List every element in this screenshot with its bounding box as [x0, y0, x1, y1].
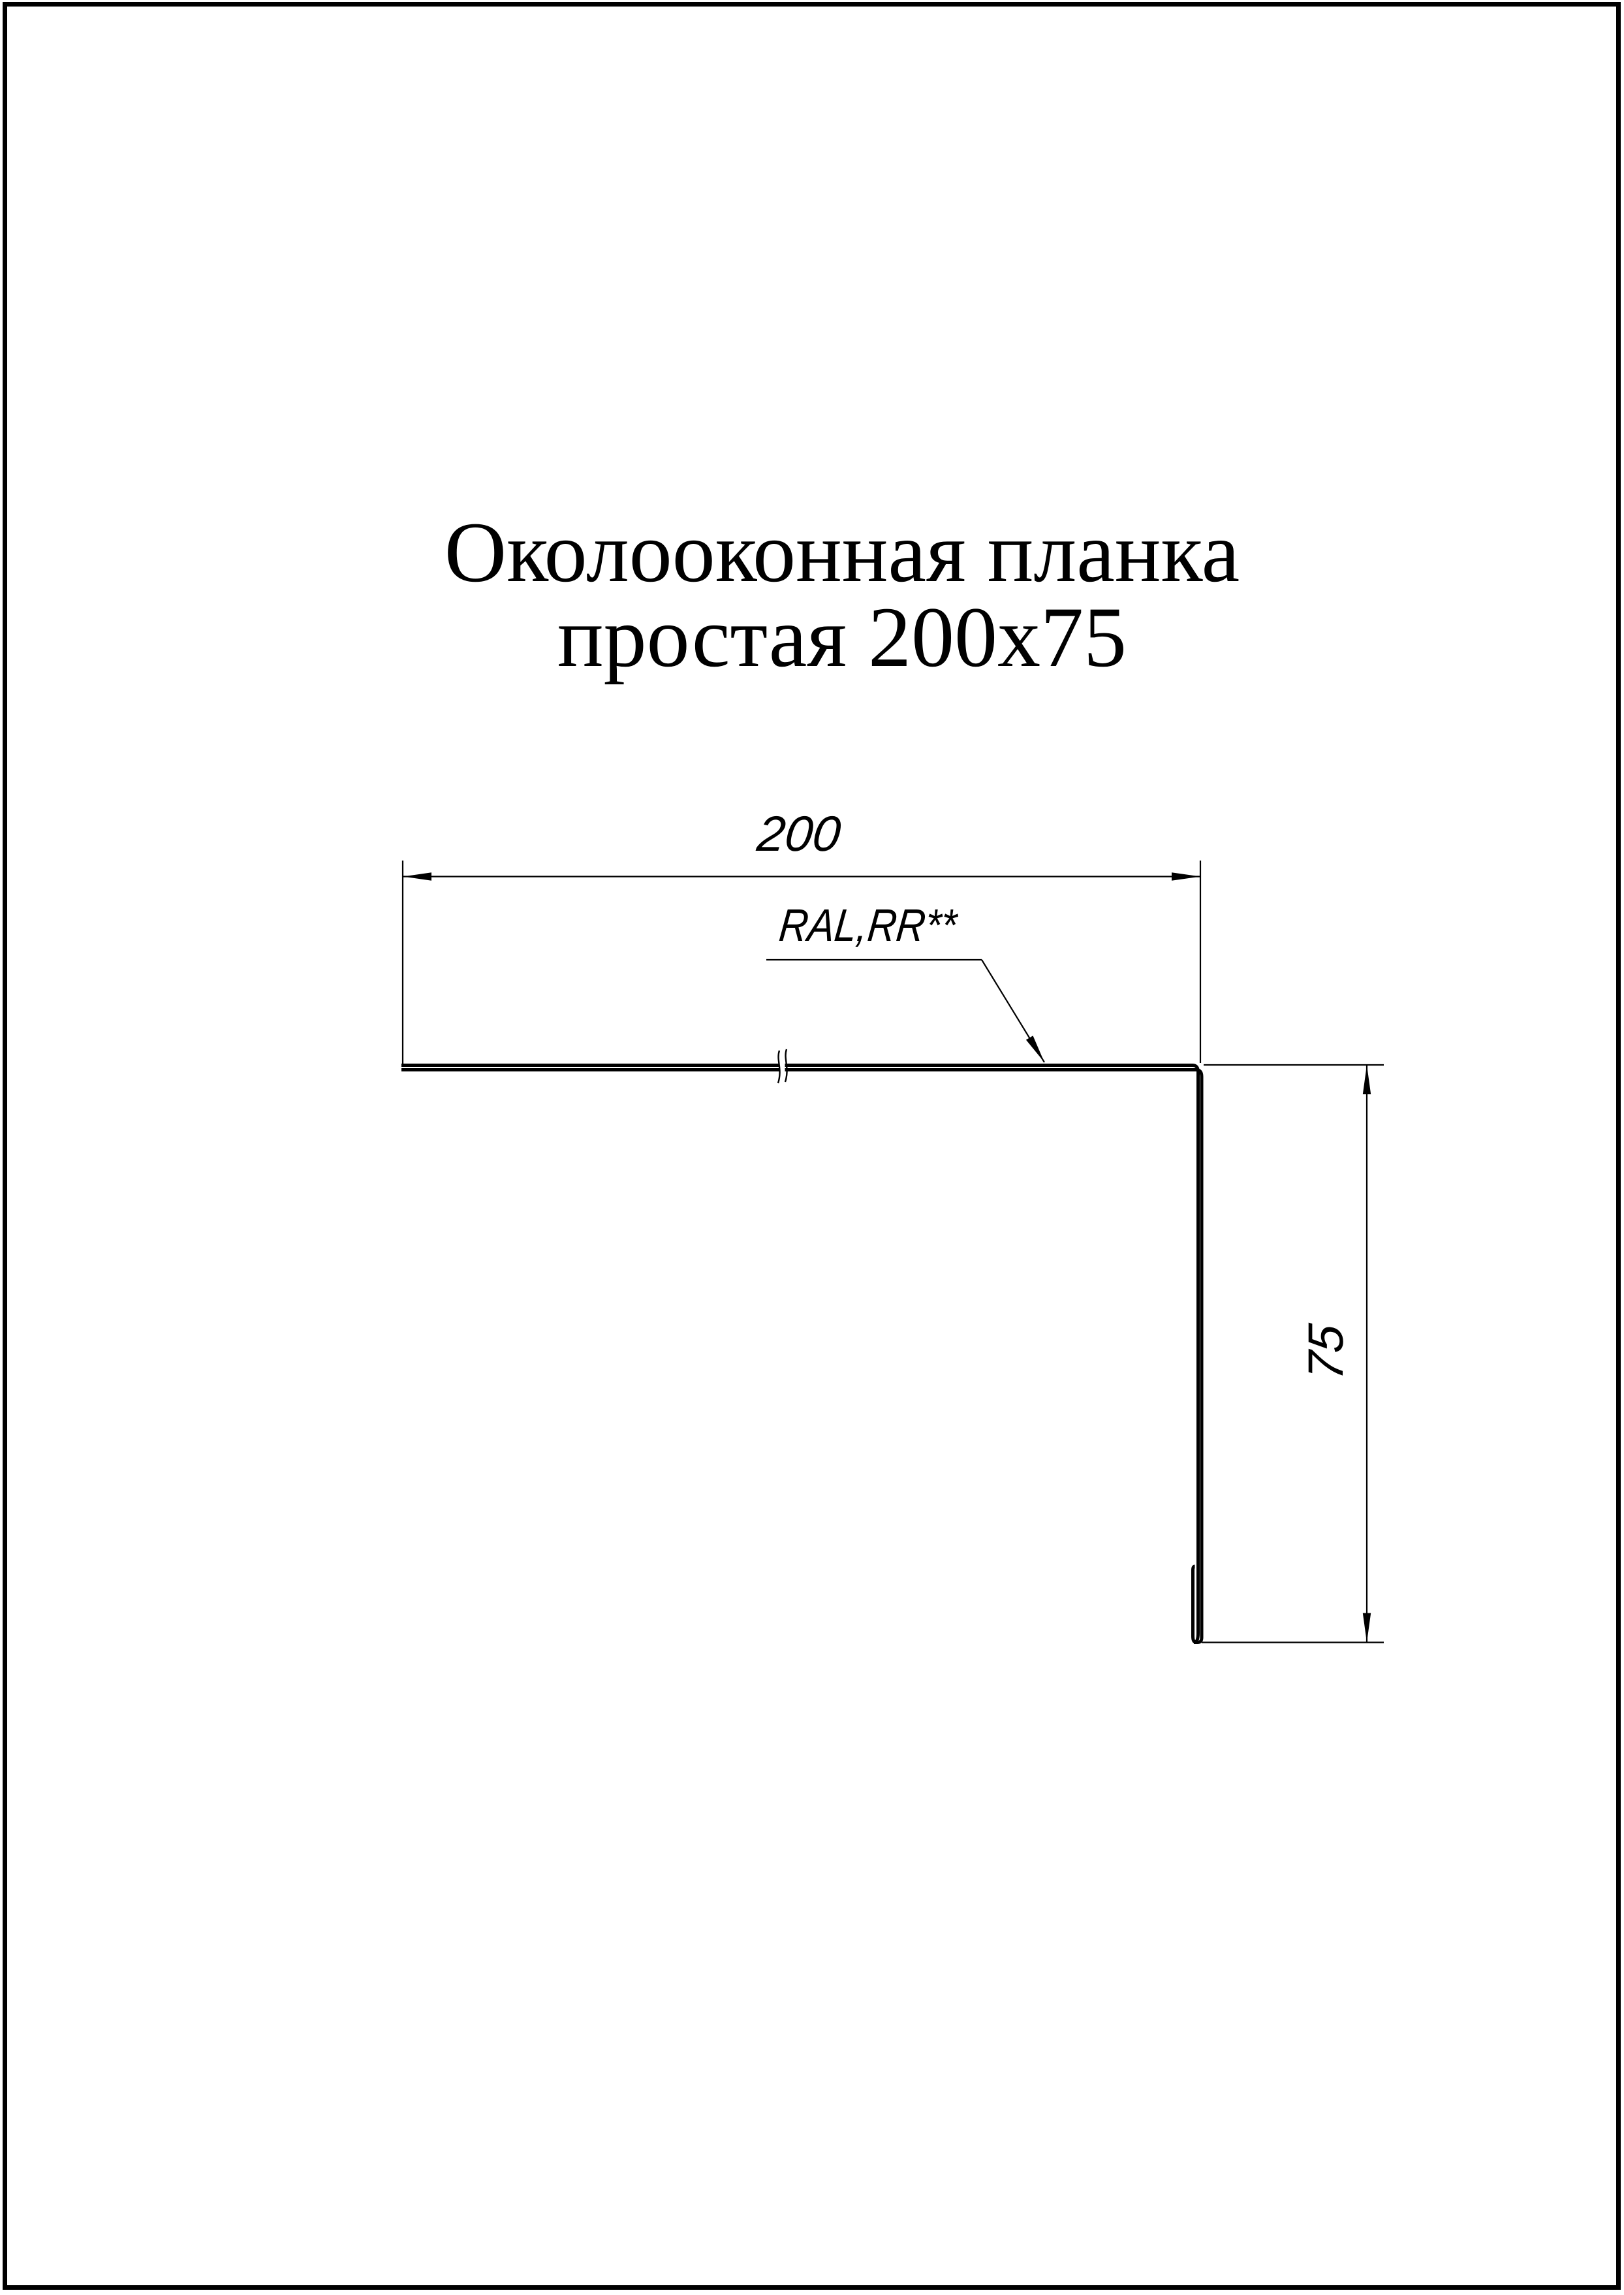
arrowhead-right	[1172, 872, 1200, 880]
arrowhead-left	[403, 872, 431, 880]
width-dimension	[403, 861, 1200, 1064]
arrowhead-down	[1363, 1613, 1371, 1643]
width-dimension-value: 200	[755, 810, 843, 859]
sheet-bottom-surface-line	[401, 1070, 1202, 1643]
coating-label: RAL,RR**	[777, 902, 959, 948]
sheet-profile	[401, 1066, 1202, 1643]
arrowhead-up	[1363, 1065, 1371, 1094]
technical-drawing	[0, 0, 1624, 2295]
leader-arrowhead	[1026, 1036, 1044, 1062]
sheet-top-surface-line	[401, 1066, 1198, 1642]
coating-leader	[766, 960, 1044, 1062]
height-dimension	[1202, 1065, 1384, 1643]
height-dimension-value: 75	[1302, 1322, 1351, 1383]
